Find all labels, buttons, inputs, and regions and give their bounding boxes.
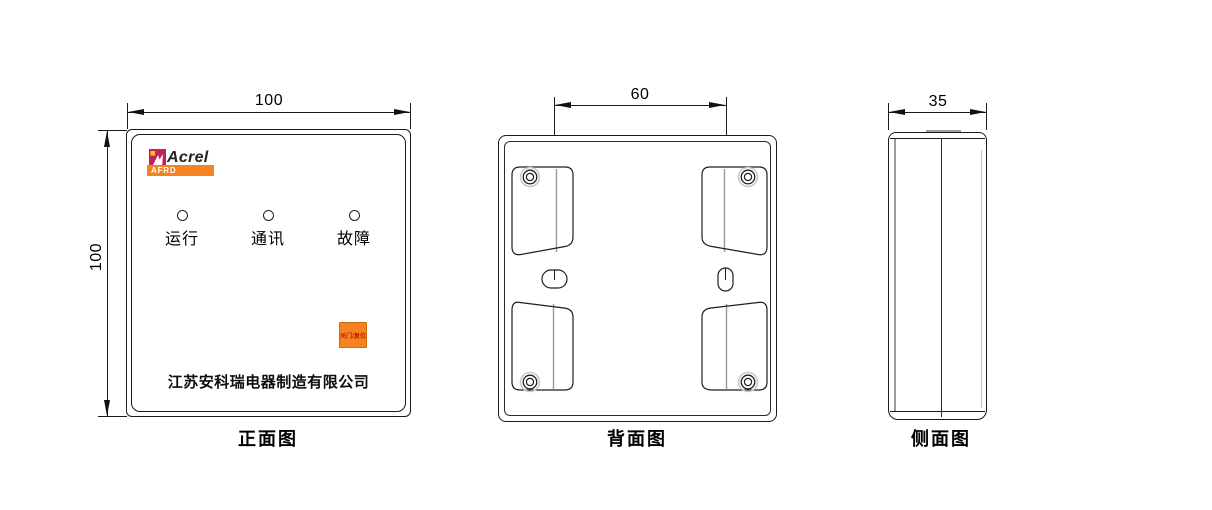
- indicator-label: 故障: [322, 225, 386, 249]
- front-view-caption: 正面图: [198, 425, 338, 451]
- dimension-line: [127, 112, 411, 113]
- model-badge: AFRD: [147, 165, 214, 176]
- extension-line: [888, 103, 889, 130]
- side-view-caption: 侧面图: [871, 425, 1011, 451]
- dimension-line: [107, 130, 108, 417]
- extension-line: [127, 103, 128, 129]
- indicator-comm: 通讯: [236, 210, 300, 249]
- indicator-label: 运行: [150, 225, 214, 249]
- extension-tick: [98, 416, 127, 417]
- indicator-run: 运行: [150, 210, 214, 249]
- arrowhead-up-icon: [104, 131, 110, 147]
- dimension-line: [554, 105, 726, 106]
- fault-led-icon: [349, 210, 360, 221]
- dimension-value: 35: [908, 94, 968, 110]
- comm-led-icon: [263, 210, 274, 221]
- left-edge-seam: [894, 139, 896, 411]
- extension-line: [410, 103, 411, 129]
- arrowhead-down-icon: [104, 400, 110, 416]
- arrowhead-left-icon: [128, 109, 144, 115]
- right-edge-seam: [981, 150, 982, 408]
- company-name: 江苏安科瑞电器制造有限公司: [131, 371, 406, 392]
- arrowhead-left-icon: [555, 102, 571, 108]
- parting-line: [941, 138, 942, 417]
- close-reset-button: 关门/复位: [339, 322, 367, 348]
- indicator-fault: 故障: [322, 210, 386, 249]
- side-device-outline: [888, 132, 987, 420]
- arrowhead-right-icon: [394, 109, 410, 115]
- arrowhead-right-icon: [709, 102, 725, 108]
- technical-drawing-canvas: 100 100 Acrel AFRD 运行: [0, 0, 1212, 510]
- dimension-value: 100: [89, 227, 105, 287]
- extension-tick: [98, 130, 127, 131]
- dimension-value: 100: [239, 93, 299, 109]
- bottom-edge-line: [890, 411, 985, 412]
- back-view-caption: 背面图: [567, 425, 707, 451]
- top-edge-line: [890, 138, 985, 139]
- run-led-icon: [177, 210, 188, 221]
- extension-line: [986, 103, 987, 130]
- indicator-label: 通讯: [236, 225, 300, 249]
- dimension-value: 60: [610, 87, 670, 103]
- arrowhead-right-icon: [970, 109, 986, 115]
- arrowhead-left-icon: [889, 109, 905, 115]
- back-device-panel: [504, 141, 771, 416]
- top-rib-line: [926, 130, 961, 132]
